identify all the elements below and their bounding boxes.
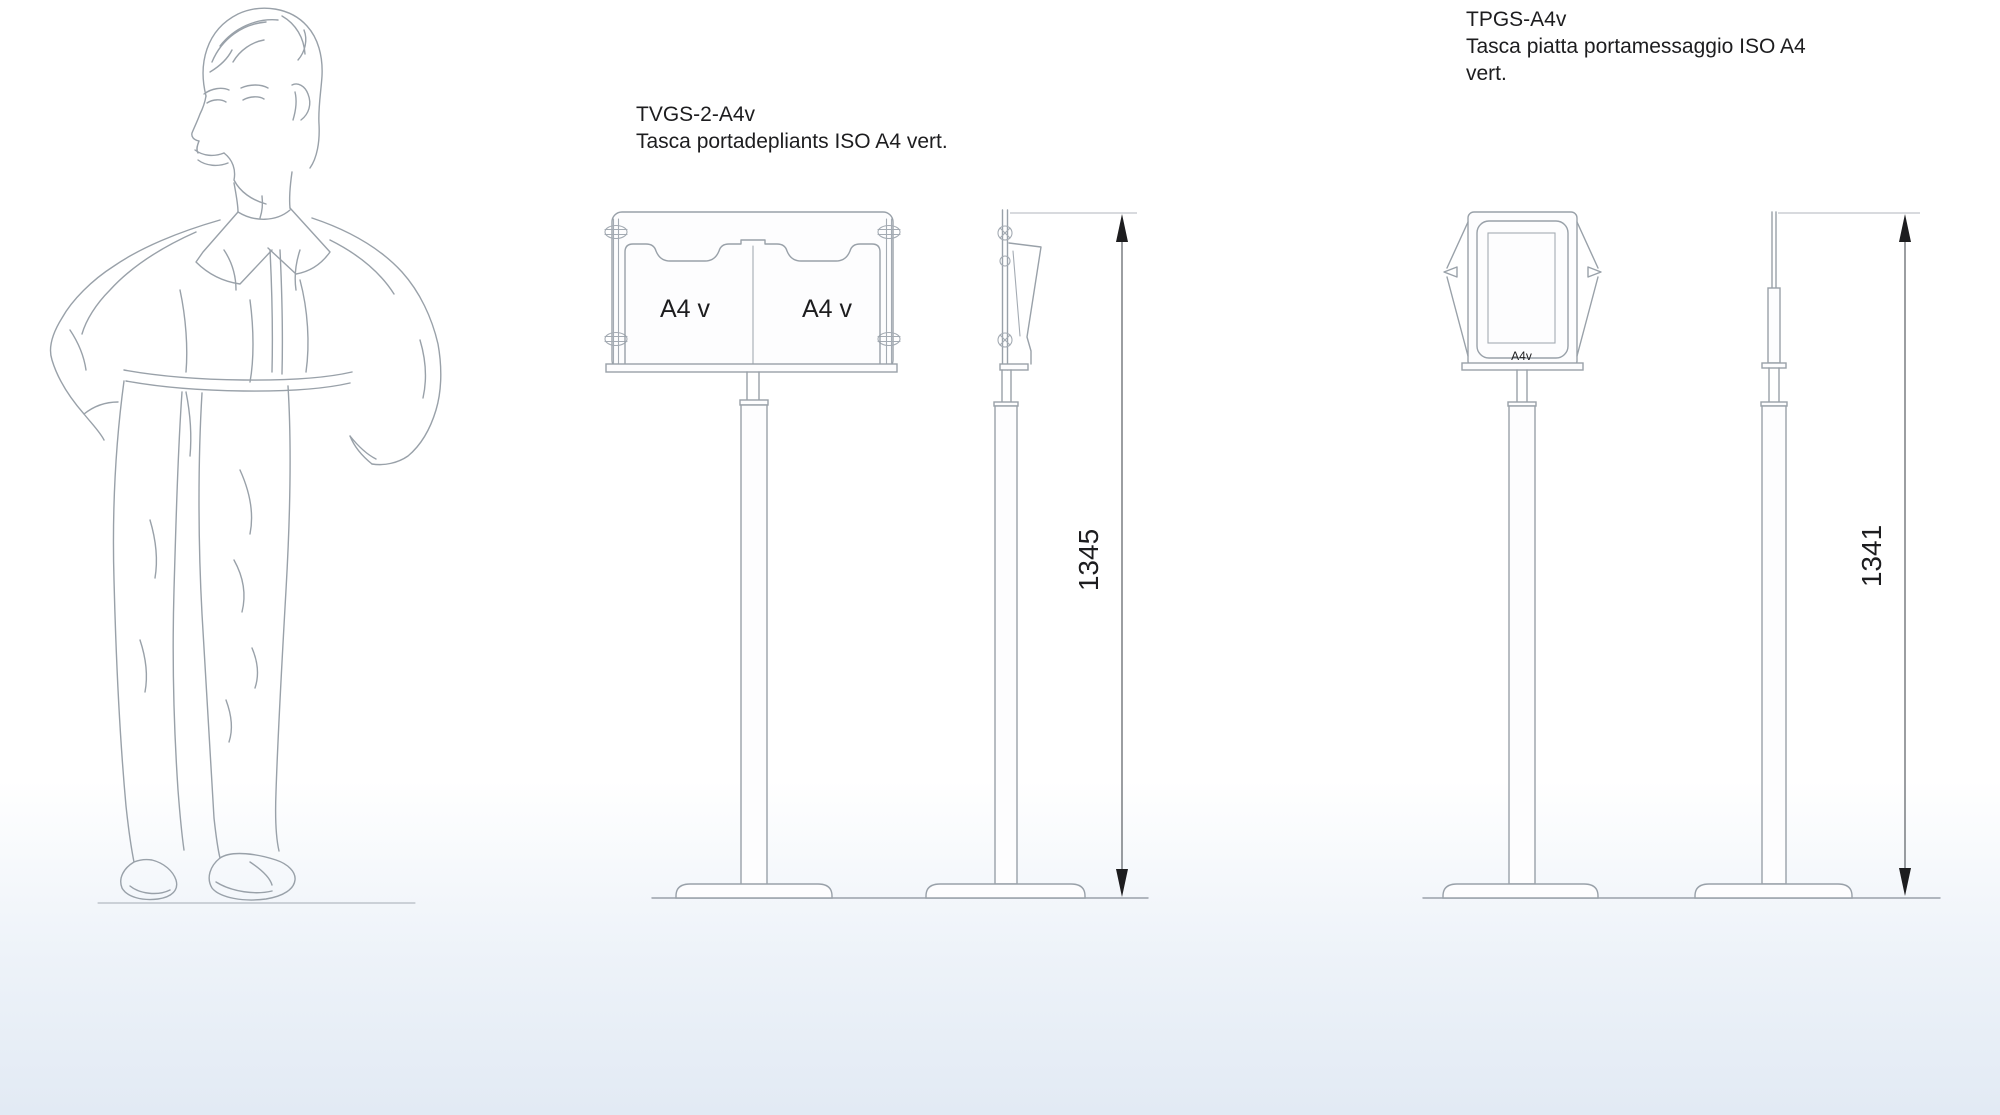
drawing-svg: A4 v A4 v bbox=[0, 0, 2000, 1115]
pocket-label-a4v: A4v bbox=[1511, 349, 1532, 363]
stand2-side-clamp bbox=[1768, 288, 1780, 363]
knob-icon bbox=[1000, 256, 1010, 266]
wing-pinch-right-icon bbox=[1588, 267, 1601, 277]
stand2-frame bbox=[1468, 212, 1577, 367]
stand1-base bbox=[676, 884, 832, 898]
technical-drawing-canvas: TVGS-2-A4v Tasca portadepliants ISO A4 v… bbox=[0, 0, 2000, 1115]
pocket-label-right: A4 v bbox=[802, 295, 853, 323]
dimension-arrow-up-icon bbox=[1899, 214, 1911, 242]
stand1-side-pole bbox=[995, 406, 1017, 884]
dimension-arrow-up-icon bbox=[1116, 214, 1128, 242]
dimension-arrow-down-icon bbox=[1899, 868, 1911, 896]
stand2-side-pole bbox=[1762, 406, 1786, 884]
stand2-side-base bbox=[1695, 884, 1852, 898]
stand1-pole-collar bbox=[740, 400, 768, 405]
stand1-front-view: A4 v A4 v bbox=[605, 212, 900, 898]
stand2-base bbox=[1443, 884, 1598, 898]
stand2-pole bbox=[1509, 406, 1535, 884]
stand1-bottom-shelf bbox=[606, 364, 897, 372]
person-figure bbox=[50, 8, 440, 900]
stand2-side-view bbox=[1695, 212, 1852, 898]
dimension-arrow-down-icon bbox=[1116, 869, 1128, 897]
stand1-side-view bbox=[926, 210, 1085, 898]
stand2-front-view: A4v bbox=[1443, 212, 1601, 898]
stand1-side-bracket bbox=[1000, 364, 1028, 370]
stand1-side-screws bbox=[998, 226, 1012, 347]
stand1-side-base bbox=[926, 884, 1085, 898]
stand1-pole bbox=[741, 405, 767, 886]
stand1-dimension: 1345 bbox=[1010, 213, 1137, 897]
wing-pinch-left-icon bbox=[1444, 267, 1457, 277]
dimension-value-2: 1341 bbox=[1856, 525, 1887, 587]
stand2-bottom-bar bbox=[1462, 363, 1583, 370]
stand2-dimension: 1341 bbox=[1778, 213, 1920, 896]
pocket-label-left: A4 v bbox=[660, 295, 711, 323]
dimension-value-1: 1345 bbox=[1073, 529, 1104, 591]
